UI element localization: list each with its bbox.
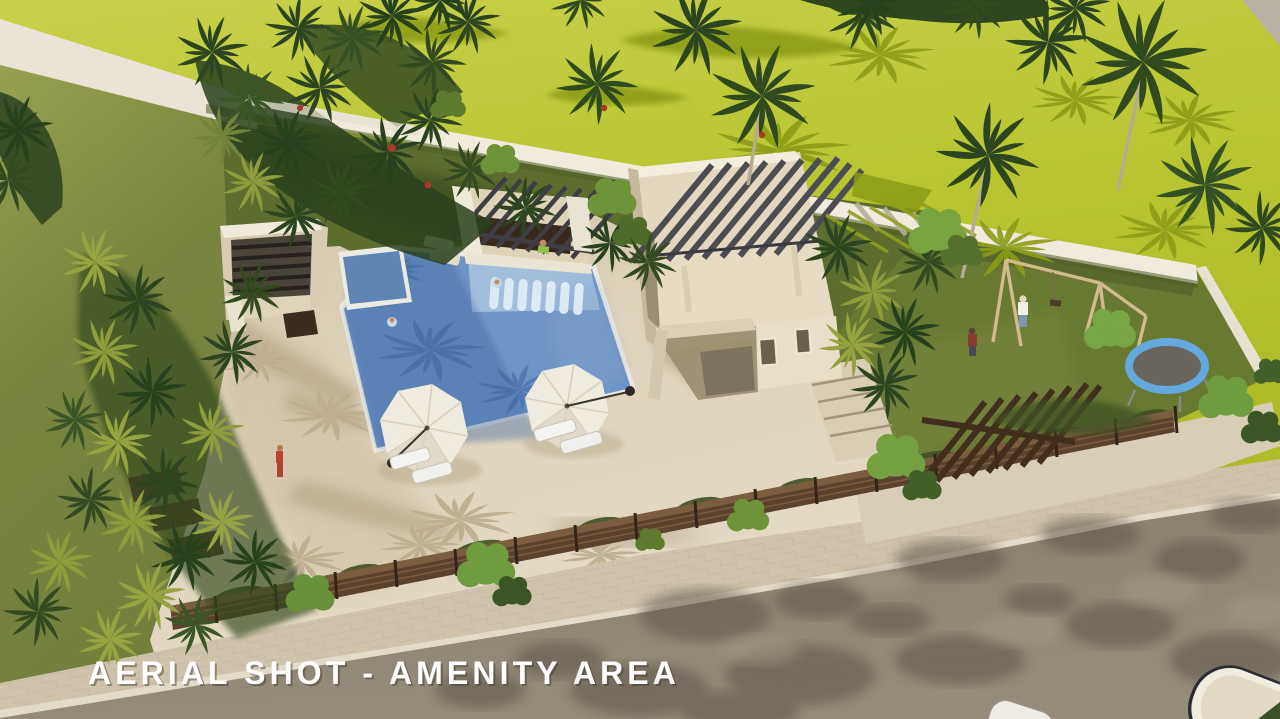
svg-text:AERIAL SHOT - AMENITY AREA: AERIAL SHOT - AMENITY AREA <box>88 655 680 691</box>
